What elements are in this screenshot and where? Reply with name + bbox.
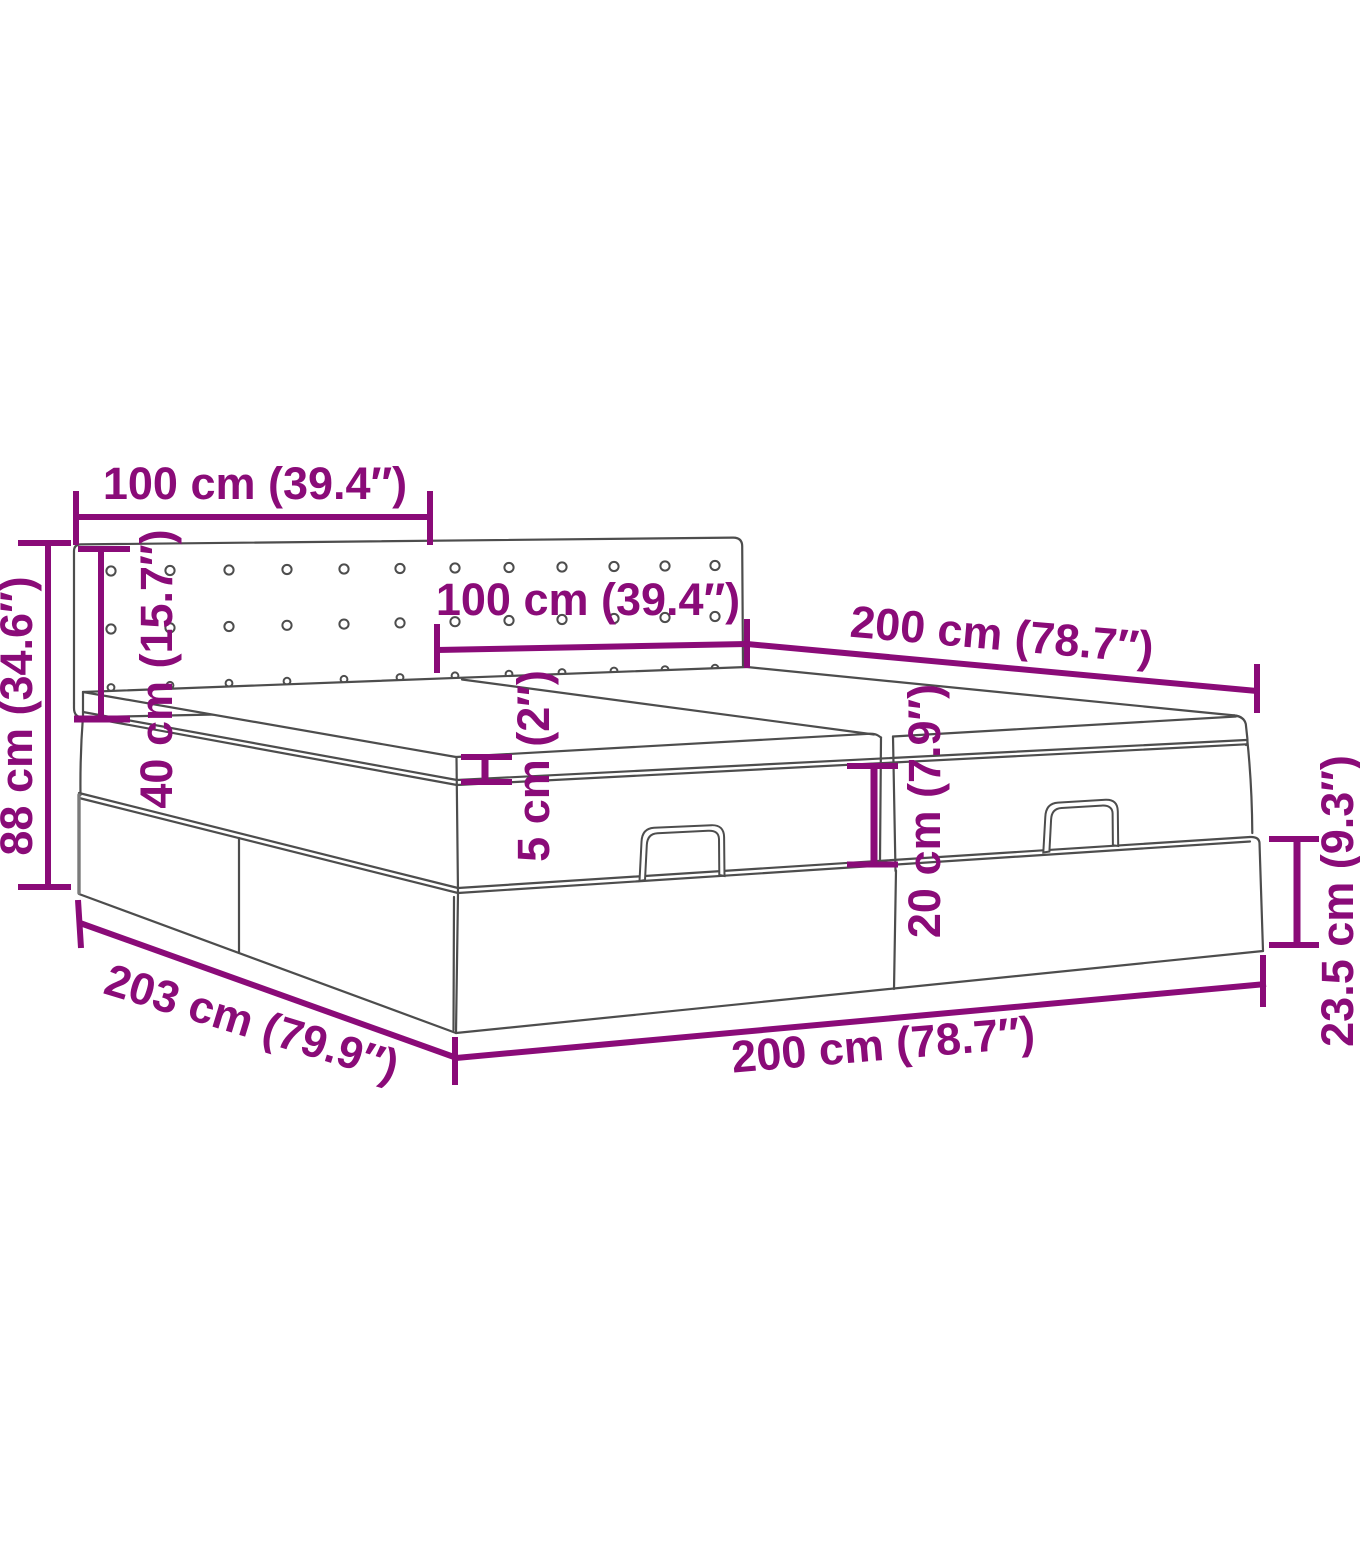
svg-text:88 cm (34.6″): 88 cm (34.6″) [0, 576, 42, 855]
svg-text:20 cm (7.9″): 20 cm (7.9″) [899, 684, 950, 938]
svg-text:100 cm (39.4″): 100 cm (39.4″) [103, 458, 407, 509]
svg-text:40 cm (15.7″): 40 cm (15.7″) [131, 529, 182, 808]
svg-text:100 cm (39.4″): 100 cm (39.4″) [436, 574, 740, 625]
svg-text:5 cm (2″): 5 cm (2″) [508, 670, 559, 862]
svg-text:23.5 cm (9.3″): 23.5 cm (9.3″) [1312, 755, 1360, 1047]
